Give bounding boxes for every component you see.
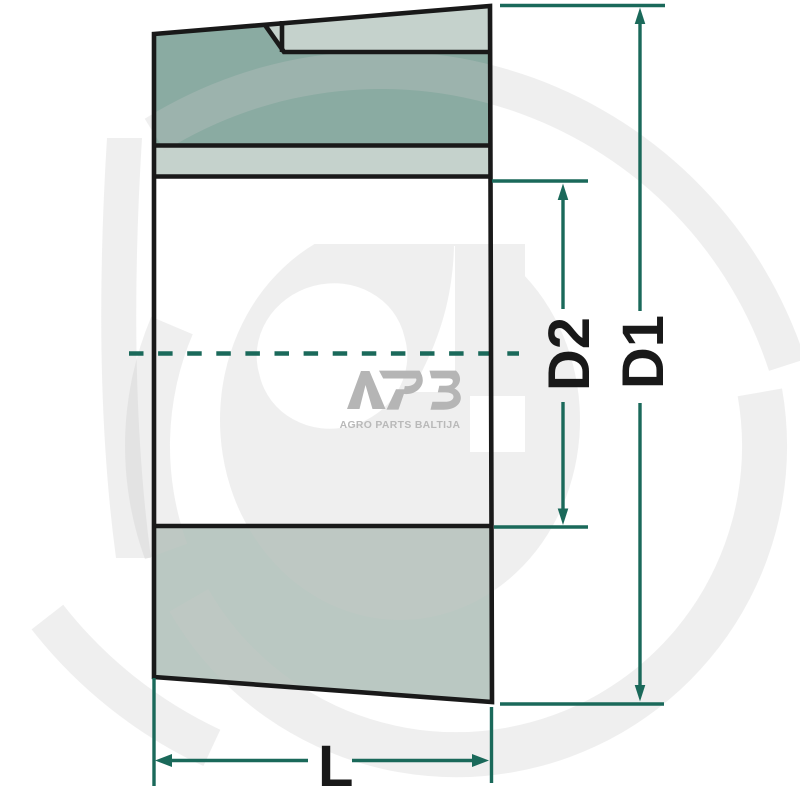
svg-text:D2: D2 [537,317,602,391]
svg-text:D1: D1 [611,315,676,389]
svg-text:AGRO PARTS BALTIJA: AGRO PARTS BALTIJA [340,420,461,431]
svg-text:L: L [318,734,353,799]
